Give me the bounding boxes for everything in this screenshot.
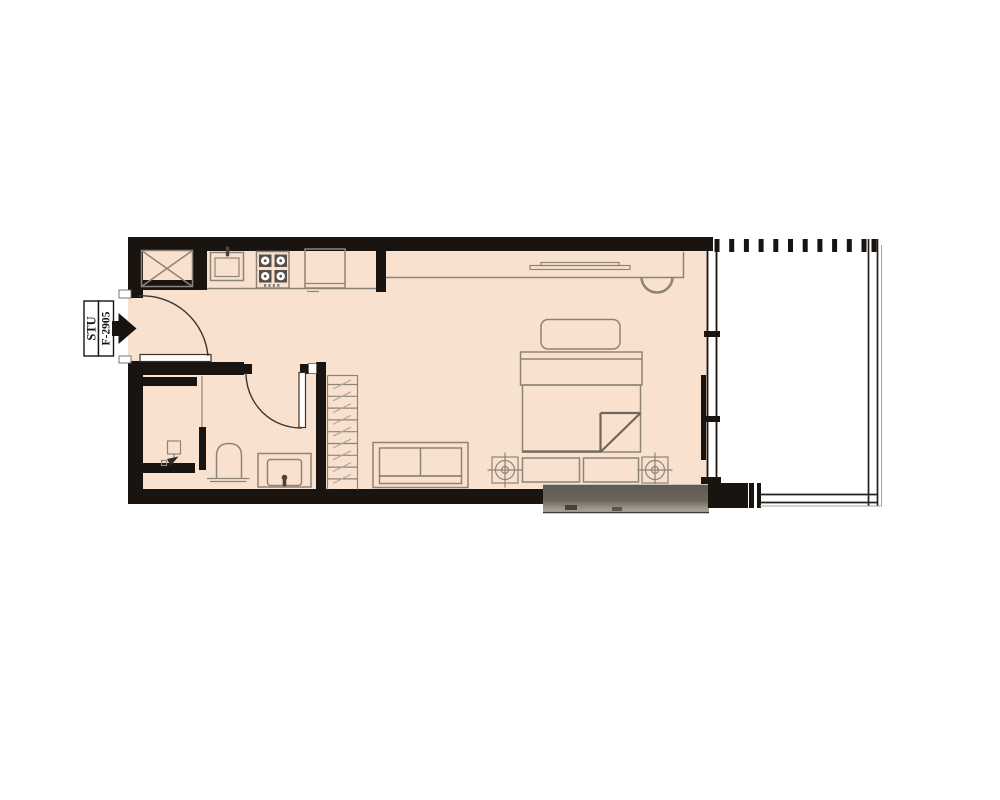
wall-top (128, 237, 713, 251)
wall-kitchen-stub (376, 237, 386, 292)
ac-ledge (543, 484, 709, 514)
bathroom-door-leaf (299, 373, 306, 428)
balcony (708, 239, 882, 508)
window-sill-block (701, 477, 721, 484)
window-wall (708, 251, 717, 483)
window-mullion-lower (704, 416, 720, 422)
wall-shower-stub (199, 427, 206, 470)
floor-plan-canvas: STU F-2905 (0, 0, 1000, 800)
bathroom-shelf-top (143, 377, 197, 386)
wall-bathroom-top (138, 362, 244, 375)
sink-faucet-icon (226, 247, 230, 257)
door-jamb-a (243, 364, 252, 374)
wall-left-lower (128, 361, 143, 503)
wall-under-shaft (140, 280, 207, 290)
unit-number-label: F-2905 (101, 311, 113, 345)
wall-wardrobe (316, 362, 326, 503)
window-mullion-upper (704, 331, 720, 337)
sliding-door-panel (701, 375, 706, 460)
unit-type-label: STU (84, 316, 98, 340)
louver-hatch (715, 239, 877, 252)
balcony-wall-block (708, 483, 761, 508)
floor-plan-drawing: STU F-2905 (0, 0, 1000, 800)
bathroom-shelf-bottom (143, 463, 195, 473)
balcony-railing (760, 239, 882, 506)
corner-top-right (700, 237, 713, 251)
entry-door-leaf (140, 355, 211, 362)
